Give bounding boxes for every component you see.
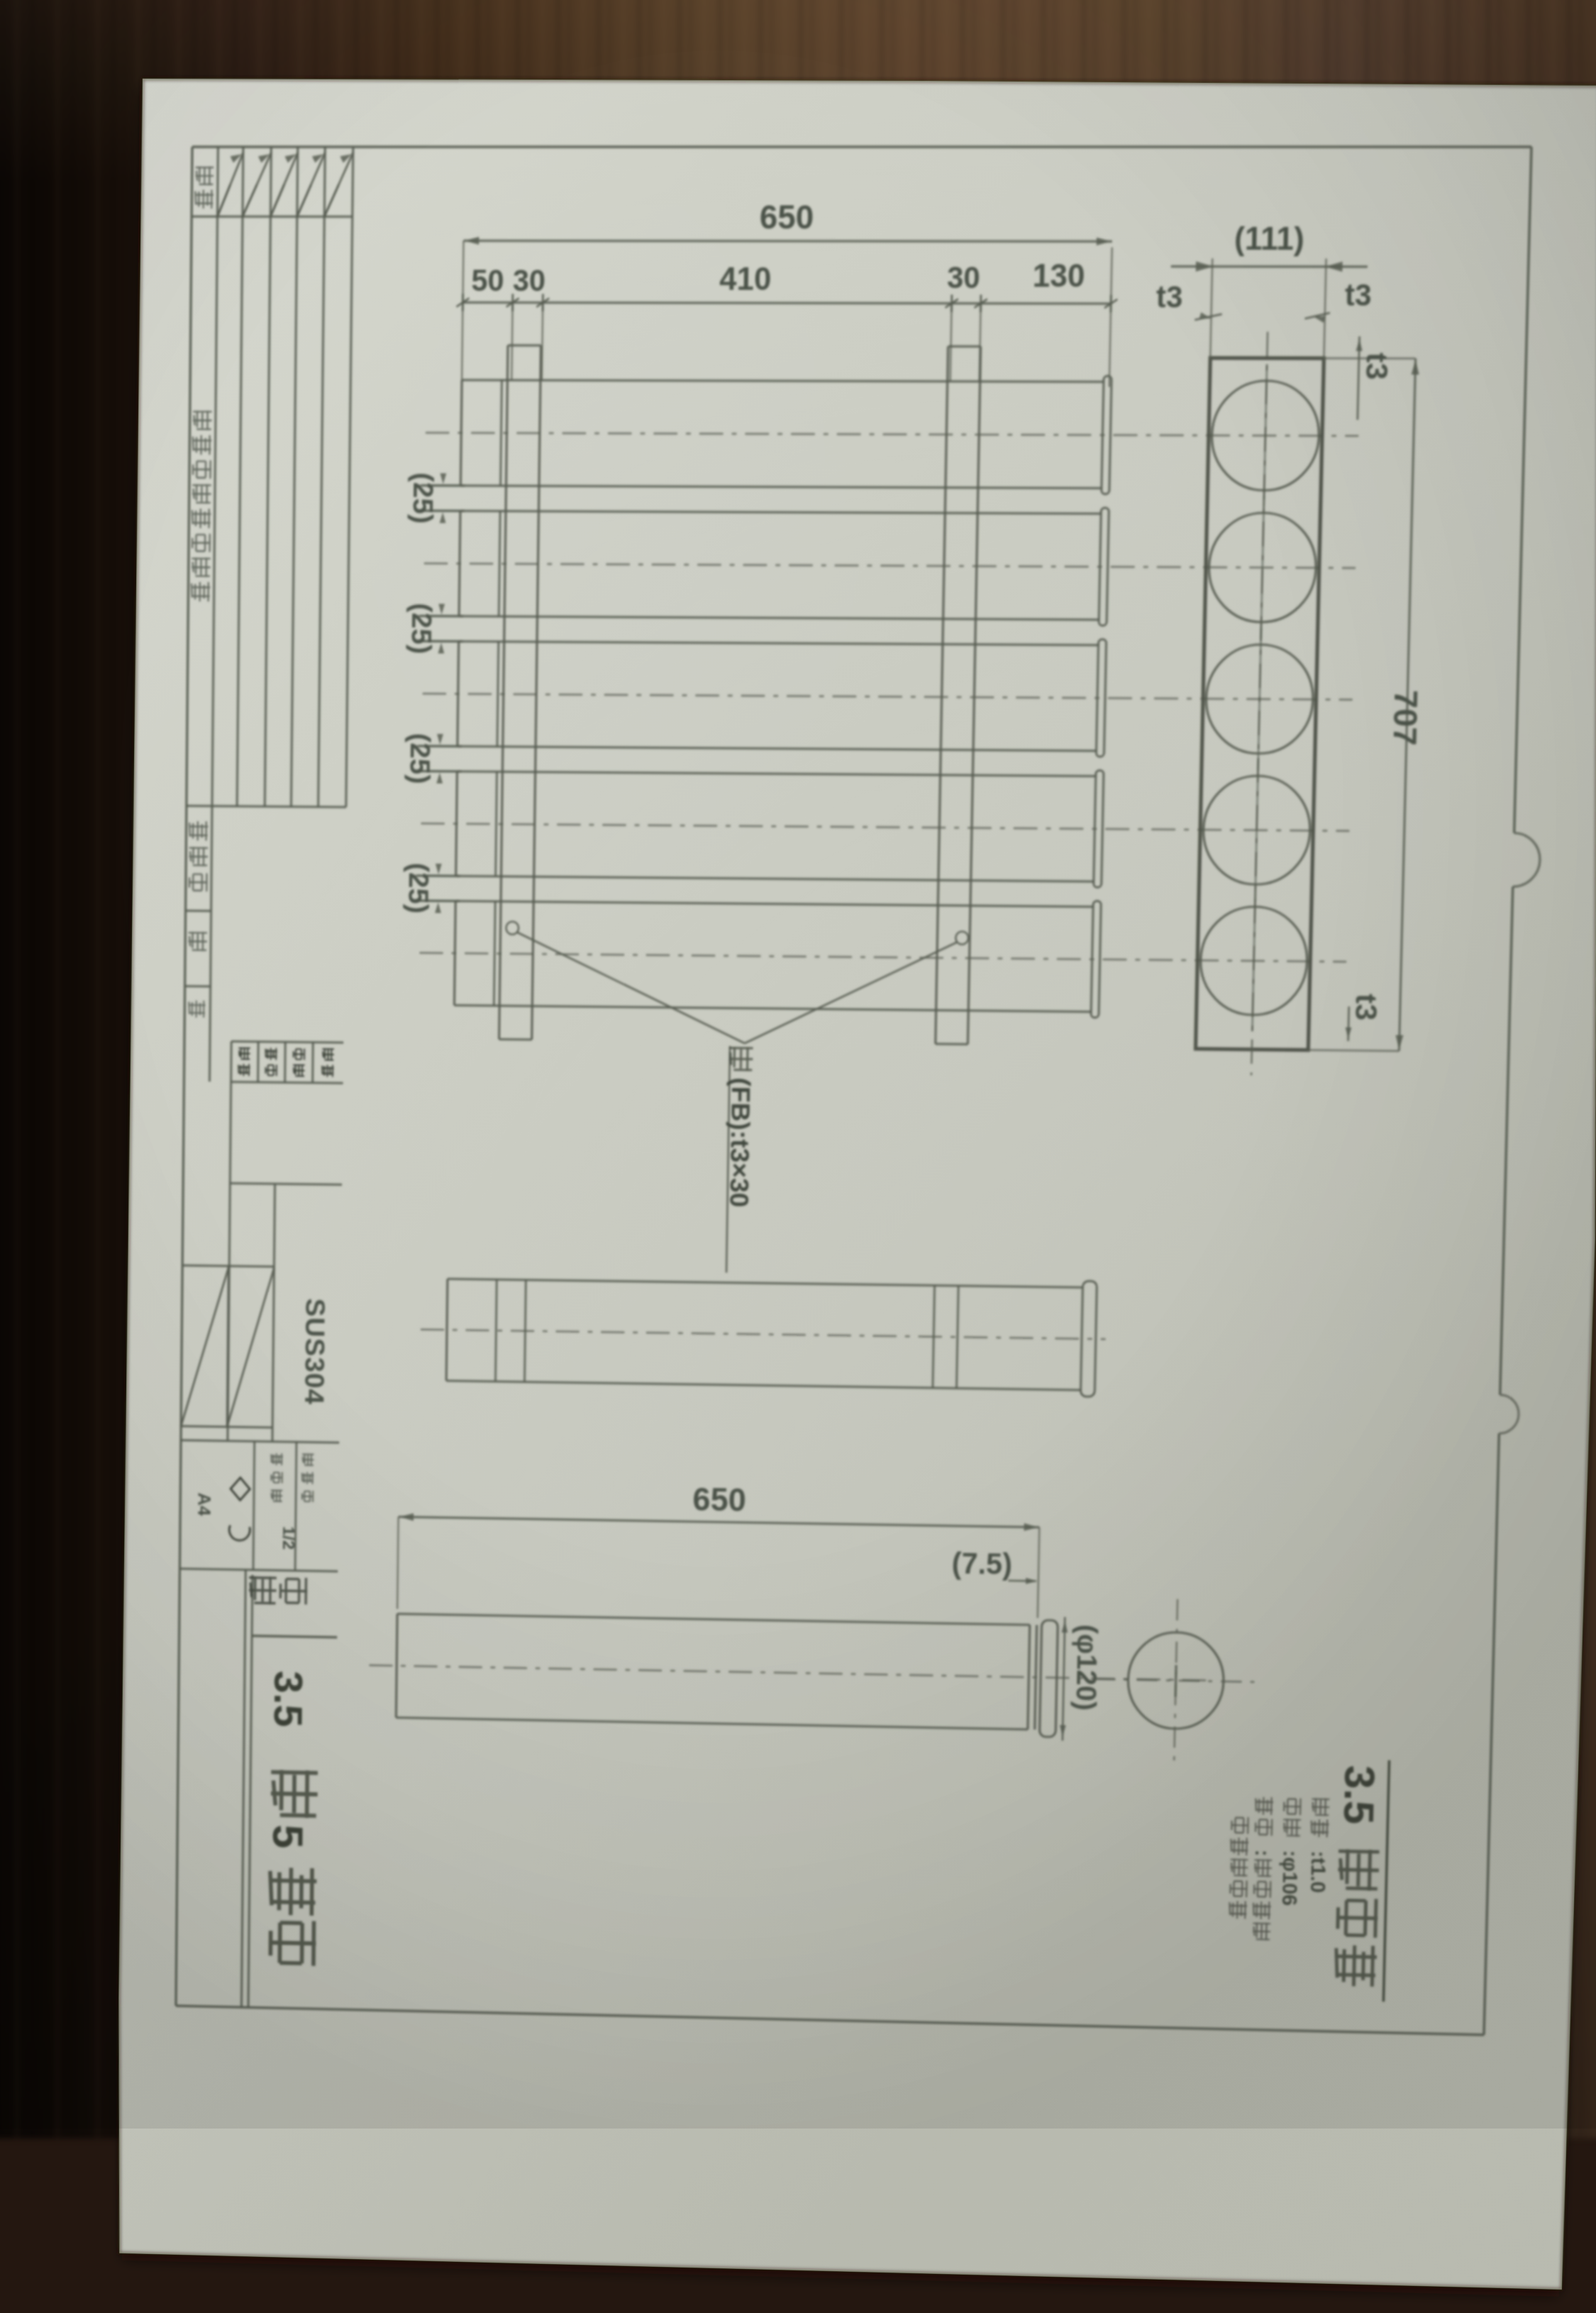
- svg-text:707: 707: [1387, 690, 1425, 746]
- svg-text:650: 650: [692, 1481, 746, 1518]
- svg-text:t3: t3: [1156, 280, 1183, 314]
- svg-text:t3: t3: [1360, 353, 1394, 380]
- svg-text:(25): (25): [403, 863, 435, 914]
- svg-text:5: 5: [264, 1824, 311, 1849]
- svg-text:(25): (25): [407, 473, 439, 524]
- svg-text:(25): (25): [406, 603, 438, 654]
- svg-text::φ106: :φ106: [1278, 1850, 1301, 1906]
- svg-text:(111): (111): [1234, 221, 1305, 258]
- svg-text:(φ120): (φ120): [1070, 1624, 1104, 1711]
- svg-text:A4: A4: [194, 1492, 214, 1516]
- svg-text:50: 50: [471, 263, 504, 297]
- svg-text:650: 650: [759, 198, 814, 236]
- svg-text:3.5: 3.5: [265, 1670, 310, 1728]
- svg-text:SUS304: SUS304: [299, 1298, 329, 1406]
- svg-text:(FB):t3×30: (FB):t3×30: [725, 1078, 756, 1208]
- svg-text:1/2: 1/2: [279, 1526, 297, 1550]
- svg-text:30: 30: [512, 263, 545, 297]
- svg-text:130: 130: [1032, 258, 1085, 294]
- svg-text:(25): (25): [404, 733, 436, 784]
- svg-text::: :: [1251, 1850, 1273, 1857]
- svg-text:(7.5): (7.5): [951, 1547, 1012, 1581]
- svg-text:t3: t3: [1349, 993, 1383, 1020]
- svg-text::t1.0: :t1.0: [1306, 1850, 1329, 1893]
- svg-text:t3: t3: [1344, 278, 1372, 312]
- svg-text:410: 410: [719, 262, 772, 297]
- svg-text:3.5: 3.5: [1335, 1765, 1384, 1825]
- svg-text:30: 30: [947, 260, 981, 294]
